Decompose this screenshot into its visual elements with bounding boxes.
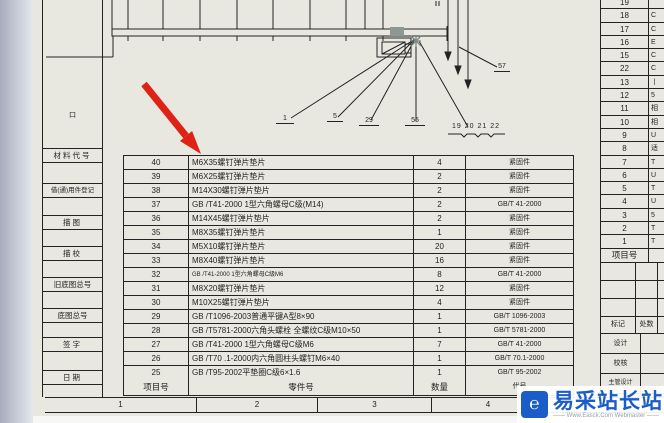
bom-cell-item: 30 bbox=[124, 296, 189, 309]
bom-cell-code: GB/T 41-2000 bbox=[466, 268, 573, 281]
bom-right-cell-fragment: 相 bbox=[649, 116, 664, 128]
bom-cell-item: 35 bbox=[124, 226, 189, 239]
bom-cell-part: GB /T41-2000 1型六角螺母C级(M14) bbox=[189, 198, 414, 211]
bom-cell-part: M5X10螺钉弹片垫片 bbox=[189, 240, 414, 253]
bom-right-cell-item: 16 bbox=[601, 36, 649, 48]
bom-cell-qty: 4 bbox=[414, 156, 466, 169]
bom-row[interactable]: 34M5X10螺钉弹片垫片20紧固件 bbox=[124, 240, 573, 254]
bom-cell-qty: 8 bbox=[414, 268, 466, 281]
field-date: 日期 bbox=[43, 370, 102, 385]
field-design: 设计 bbox=[601, 334, 641, 353]
balloon-label-55[interactable]: 55 bbox=[405, 116, 425, 126]
cad-viewport: 口 材料代号 借(通)用件登记 描图 描校 旧底图总号 底图总号 签字 日期 4… bbox=[0, 0, 664, 423]
bom-cell-qty: 1 bbox=[414, 310, 466, 323]
bom-header-item: 项目号 bbox=[124, 380, 189, 395]
bom-cell-code: 紧固件 bbox=[466, 156, 573, 169]
bom-right-cell-item: 22 bbox=[601, 62, 649, 74]
field-count: 处数 bbox=[636, 317, 658, 333]
bom-cell-qty: 16 bbox=[414, 254, 466, 267]
bom-cell-code: 紧固件 bbox=[466, 282, 573, 295]
bom-cell-qty: 2 bbox=[414, 170, 466, 183]
bom-cell-part: GB /T41-2000 1型六角螺母C级M6 bbox=[189, 338, 414, 351]
bom-header-part: 零件号 bbox=[189, 380, 414, 395]
bom-right-cell-item: 4 bbox=[601, 195, 649, 207]
bom-right-cell-item: 13 bbox=[601, 76, 649, 88]
bom-cell-part: GB /T95-2002平垫圈C级6×1.6 bbox=[189, 366, 414, 380]
bom-cell-item: 28 bbox=[124, 324, 189, 337]
bom-cell-item: 36 bbox=[124, 212, 189, 225]
bom-right-row[interactable]: 16E bbox=[601, 36, 664, 49]
bom-right-cell-fragment: T bbox=[649, 182, 664, 194]
bom-right-row[interactable]: 19 bbox=[601, 0, 664, 9]
bom-right-row[interactable]: 8适 bbox=[601, 142, 664, 155]
bom-right-cell-item: 2 bbox=[601, 222, 649, 234]
title-block-empty-cell bbox=[601, 281, 636, 298]
bom-cell-qty: 1 bbox=[414, 366, 466, 380]
field-tracing: 描图 bbox=[43, 215, 102, 230]
bom-cell-code: 紧固件 bbox=[466, 184, 573, 197]
bom-header-qty: 数量 bbox=[414, 380, 466, 395]
bom-cell-qty: 12 bbox=[414, 282, 466, 295]
bom-cell-part: M8X35螺钉弹片垫片 bbox=[189, 226, 414, 239]
bom-row[interactable]: 36M14X45螺钉弹片垫片2紧固件 bbox=[124, 212, 573, 226]
bom-cell-qty: 20 bbox=[414, 240, 466, 253]
bom-right-cell-fragment: C bbox=[649, 9, 664, 21]
field-signature: 签字 bbox=[43, 337, 102, 352]
bom-right-cell-item: 7 bbox=[601, 156, 649, 168]
bom-cell-code: GB/T 1096-2003 bbox=[466, 310, 573, 323]
bom-cell-qty: 1 bbox=[414, 324, 466, 337]
bom-cell-qty: 7 bbox=[414, 338, 466, 351]
bom-cell-qty: 4 bbox=[414, 296, 466, 309]
bom-cell-item: 37 bbox=[124, 198, 189, 211]
bom-right-cell-fragment: C bbox=[649, 23, 664, 35]
bom-right-cell-item: 17 bbox=[601, 23, 649, 35]
bom-right-cell-fragment: 丨 bbox=[649, 76, 664, 88]
left-panel-mark: 口 bbox=[43, 112, 102, 120]
bom-right-cell-item: 3 bbox=[601, 209, 649, 221]
bom-row[interactable]: 37GB /T41-2000 1型六角螺母C级(M14)2GB/T 41-200… bbox=[124, 198, 573, 212]
selected-component-highlight bbox=[390, 27, 404, 36]
bom-row[interactable]: 38M14X30螺钉弹片垫片2紧固件 bbox=[124, 184, 573, 198]
bom-right-cell-item: 9 bbox=[601, 129, 649, 141]
field-borrowed-parts: 借(通)用件登记 bbox=[43, 183, 102, 198]
bom-right-cell-fragment: 相 bbox=[649, 102, 664, 114]
bom-cell-part: M6X35螺钉弹片垫片 bbox=[189, 156, 414, 169]
bom-cell-part: M8X40螺钉弹片垫片 bbox=[189, 254, 414, 267]
bom-right-row[interactable]: 15C bbox=[601, 49, 664, 62]
bom-right-row[interactable]: 18C bbox=[601, 9, 664, 22]
bom-right-header-row[interactable]: 项目号 bbox=[601, 249, 664, 263]
balloon-label-57[interactable]: 57 bbox=[494, 62, 510, 72]
bom-right-row[interactable]: 125 bbox=[601, 89, 664, 102]
bom-cell-code: 紧固件 bbox=[466, 240, 573, 253]
field-old-master-no: 旧底图总号 bbox=[43, 277, 102, 292]
bom-table[interactable]: 40M6X35螺钉弹片垫片4紧固件39M6X25螺钉弹片垫片2紧固件38M14X… bbox=[123, 155, 574, 396]
bom-row[interactable]: 29GB /T1096-2003普通平键A型8×901GB/T 1096-200… bbox=[124, 310, 573, 324]
bom-row[interactable]: 25GB /T95-2002平垫圈C级6×1.61GB/T 95-2002 bbox=[124, 366, 573, 380]
bom-cell-part: M6X25螺钉弹片垫片 bbox=[189, 170, 414, 183]
bom-cell-qty: 2 bbox=[414, 212, 466, 225]
bom-cell-part: M8X20螺钉弹片垫片 bbox=[189, 282, 414, 295]
zone-number: 1 bbox=[45, 398, 197, 412]
bom-right-cell-fragment: U bbox=[649, 129, 664, 141]
main-bom-rows: 40M6X35螺钉弹片垫片4紧固件39M6X25螺钉弹片垫片2紧固件38M14X… bbox=[124, 156, 573, 380]
balloon-label-5[interactable]: 5 bbox=[327, 112, 343, 122]
bom-cell-item: 32 bbox=[124, 268, 189, 281]
bom-right-row[interactable]: 4U bbox=[601, 195, 664, 208]
bom-right-cell-fragment: T bbox=[649, 235, 664, 247]
title-block-empty-cell bbox=[601, 263, 636, 280]
field-trace-check: 描校 bbox=[43, 246, 102, 261]
bom-cell-item: 25 bbox=[124, 366, 189, 380]
zone-number: 3 bbox=[318, 398, 432, 412]
window-edge-gradient bbox=[0, 0, 33, 423]
bom-right-row[interactable]: 22C bbox=[601, 62, 664, 75]
bom-right-cell-item: 5 bbox=[601, 182, 649, 194]
bom-row[interactable]: 30M10X25螺钉弹片垫片4紧固件 bbox=[124, 296, 573, 310]
bom-row[interactable]: 32GB /T41-2000 1型六角螺母C级M68GB/T 41-2000 bbox=[124, 268, 573, 282]
bom-right-row[interactable]: 11相 bbox=[601, 102, 664, 115]
watermark-title: 易采站长站 bbox=[553, 390, 663, 413]
bom-row[interactable]: 31M8X20螺钉弹片垫片12紧固件 bbox=[124, 282, 573, 296]
bom-cell-code: 紧固件 bbox=[466, 226, 573, 239]
bom-cell-code: 紧固件 bbox=[466, 170, 573, 183]
title-block-empty-cell bbox=[601, 299, 636, 316]
bom-cell-part: GB /T5781-2000六角头螺栓 全螺纹C级M10×50 bbox=[189, 324, 414, 337]
bom-right-cell-item: 1 bbox=[601, 235, 649, 247]
bom-cell-item: 39 bbox=[124, 170, 189, 183]
bom-right-header-cont bbox=[649, 249, 664, 262]
bom-cell-qty: 1 bbox=[414, 226, 466, 239]
bom-cell-item: 33 bbox=[124, 254, 189, 267]
bom-cell-item: 27 bbox=[124, 338, 189, 351]
bom-right-cell-fragment: U bbox=[649, 169, 664, 181]
bom-cell-part: M10X25螺钉弹片垫片 bbox=[189, 296, 414, 309]
bom-cell-part: GB /T41-2000 1型六角螺母C级M6 bbox=[189, 268, 414, 281]
field-material-code: 材料代号 bbox=[43, 148, 102, 163]
bom-right-cell-fragment bbox=[649, 0, 664, 8]
bom-cell-code: GB/T 70.1-2000 bbox=[466, 352, 573, 365]
bom-row[interactable]: 35M8X35螺钉弹片垫片1紧固件 bbox=[124, 226, 573, 240]
bom-right-row[interactable]: 5T bbox=[601, 182, 664, 195]
bom-cell-part: M14X30螺钉弹片垫片 bbox=[189, 184, 414, 197]
bom-cell-item: 31 bbox=[124, 282, 189, 295]
bom-row[interactable]: 39M6X25螺钉弹片垫片2紧固件 bbox=[124, 170, 573, 184]
field-master-no: 底图总号 bbox=[43, 308, 102, 323]
right-bom-rows: 1918C17C16E15C22C13丨12511相10相9U8适7T6U5T4… bbox=[601, 0, 664, 249]
bom-right-row[interactable]: 2T bbox=[601, 222, 664, 235]
bom-right-cell-fragment: E bbox=[649, 36, 664, 48]
bom-cell-qty: 2 bbox=[414, 184, 466, 197]
watermark-logo-icon: ℮ bbox=[521, 391, 548, 418]
bom-right-cell-item: 15 bbox=[601, 49, 649, 61]
bom-right-cell-fragment: 5 bbox=[649, 209, 664, 221]
bom-row[interactable]: 27GB /T41-2000 1型六角螺母C级M67GB/T 41-2000 bbox=[124, 338, 573, 352]
bom-cell-qty: 2 bbox=[414, 198, 466, 211]
watermark: ℮ 易采站长站 —— Www.Easck.Com Webmaster —— bbox=[517, 386, 664, 423]
zone-number: 2 bbox=[197, 398, 318, 412]
bom-right-cell-fragment: T bbox=[649, 222, 664, 234]
balloon-label-1[interactable]: 1 bbox=[276, 114, 294, 124]
bom-cell-code: 紧固件 bbox=[466, 254, 573, 267]
selected-vertex-star bbox=[411, 35, 421, 47]
title-block: 标记 处数 设计 校核 主管设计 bbox=[600, 263, 664, 394]
bom-cell-code: GB/T 95-2002 bbox=[466, 366, 573, 380]
balloon-label-29[interactable]: 29 bbox=[359, 116, 379, 126]
bom-right-cell-item: 18 bbox=[601, 9, 649, 21]
bom-cell-part: GB /T70 .1-2000内六角圆柱头螺钉M6×40 bbox=[189, 352, 414, 365]
bom-row[interactable]: 26GB /T70 .1-2000内六角圆柱头螺钉M6×401GB/T 70.1… bbox=[124, 352, 573, 366]
bom-cell-item: 38 bbox=[124, 184, 189, 197]
bom-cell-code: GB/T 41-2000 bbox=[466, 198, 573, 211]
bom-right-cell-fragment: C bbox=[649, 49, 664, 61]
bom-right-row[interactable]: 9U bbox=[601, 129, 664, 142]
bom-right-cell-fragment: 适 bbox=[649, 142, 664, 154]
watermark-subtitle: —— Www.Easck.Com Webmaster —— bbox=[553, 413, 663, 420]
bom-right-row[interactable]: 7T bbox=[601, 156, 664, 169]
bom-cell-code: 紧固件 bbox=[466, 296, 573, 309]
bom-row[interactable]: 40M6X35螺钉弹片垫片4紧固件 bbox=[124, 156, 573, 170]
bom-cell-code: 紧固件 bbox=[466, 212, 573, 225]
field-check: 校核 bbox=[601, 354, 641, 373]
bom-right-row[interactable]: 17C bbox=[601, 23, 664, 36]
bom-cell-item: 29 bbox=[124, 310, 189, 323]
balloon-label-group[interactable]: 19 20 21 22 bbox=[447, 122, 505, 131]
bom-right-row[interactable]: 35 bbox=[601, 209, 664, 222]
bom-right-row[interactable]: 1T bbox=[601, 235, 664, 248]
bom-cell-item: 40 bbox=[124, 156, 189, 169]
bom-cell-item: 34 bbox=[124, 240, 189, 253]
bom-cell-part: GB /T1096-2003普通平键A型8×90 bbox=[189, 310, 414, 323]
bom-right-row[interactable]: 13丨 bbox=[601, 76, 664, 89]
bom-right-cell-item: 10 bbox=[601, 116, 649, 128]
field-mark: 标记 bbox=[601, 317, 636, 333]
bom-right-row[interactable]: 6U bbox=[601, 169, 664, 182]
bom-right-cell-fragment: 5 bbox=[649, 89, 664, 101]
bom-right-row[interactable]: 10相 bbox=[601, 116, 664, 129]
bom-right-header-item: 项目号 bbox=[601, 249, 649, 262]
bom-row[interactable]: 33M8X40螺钉弹片垫片16紧固件 bbox=[124, 254, 573, 268]
bom-right-cell-item: 8 bbox=[601, 142, 649, 154]
bom-row[interactable]: 28GB /T5781-2000六角头螺栓 全螺纹C级M10×501GB/T 5… bbox=[124, 324, 573, 338]
bom-cell-item: 26 bbox=[124, 352, 189, 365]
bom-header-row[interactable]: 项目号 零件号 数量 代号 bbox=[124, 380, 573, 395]
bom-cell-code: GB/T 5781-2000 bbox=[466, 324, 573, 337]
bom-cell-code: GB/T 41-2000 bbox=[466, 338, 573, 351]
left-title-block-column: 口 材料代号 借(通)用件登记 描图 描校 旧底图总号 底图总号 签字 日期 bbox=[42, 0, 103, 397]
bom-right-cell-item: 12 bbox=[601, 89, 649, 101]
bom-right-cell-fragment: U bbox=[649, 195, 664, 207]
bom-cell-part: M14X45螺钉弹片垫片 bbox=[189, 212, 414, 225]
bom-right-cell-fragment: T bbox=[649, 156, 664, 168]
bom-right-cell-item: 11 bbox=[601, 102, 649, 114]
bom-cell-qty: 1 bbox=[414, 352, 466, 365]
bom-right-cell-item: 19 bbox=[601, 0, 649, 8]
bom-right-cell-item: 6 bbox=[601, 169, 649, 181]
bom-table-right[interactable]: 1918C17C16E15C22C13丨12511相10相9U8适7T6U5T4… bbox=[600, 0, 664, 263]
bom-right-cell-fragment: C bbox=[649, 62, 664, 74]
